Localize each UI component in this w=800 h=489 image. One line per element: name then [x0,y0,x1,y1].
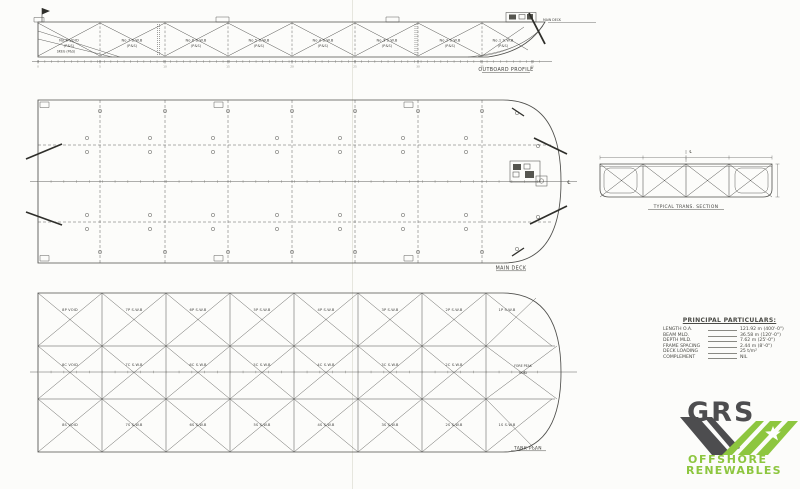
tank-label-center: 5C S.W.B [253,363,271,367]
frame-number: 30 [416,65,420,69]
tank-label-stbd: 3S S.W.B [381,423,398,427]
profile-skeg-label: SKEG (P&S) [57,50,76,54]
mooring-line-arrows [26,108,567,256]
particulars-title: PRINCIPAL PARTICULARS: [663,317,796,324]
tank-label-stbd: 8S VOID [62,423,78,427]
tank-label-port: 2P S.W.B [446,308,463,312]
particulars-row: COMPLEMENT NIL [663,355,796,361]
frame-number: 25 [353,65,357,69]
tank-label-stbd: 2S S.W.B [445,423,462,427]
leader-line [708,357,737,359]
profile-tank-label: No.5 S.W.B [248,39,269,43]
tank-label-stbd: 6S S.W.B [189,423,206,427]
tank-label-stbd: 1S S.W.B [498,423,515,427]
grs-offshore-renewables-logo: GRS OFFSHORE RENEWABLES [676,401,798,485]
tank-cell-bracing [38,293,557,452]
profile-bulkheads [100,22,482,57]
profile-skeg-lines [38,31,120,57]
main-deck-edge-label: MAIN DECK [543,18,562,22]
tank-label-center: 4C S.W.B [317,363,335,367]
profile-tank-label: No.6 S.W.B [185,39,206,43]
fore-peak-label: VOID [519,371,528,375]
profile-tank-sub: (P&S) [445,44,456,48]
particular-label: COMPLEMENT [663,355,705,361]
leader-line [708,335,737,337]
profile-tank-label: No.8 VOID [59,39,79,43]
tank-label-port: 8P VOID [62,308,78,312]
tank-label-stbd: 4S S.W.B [317,423,334,427]
tank-label-port: 7P S.W.B [126,308,143,312]
tank-label-port: 4P S.W.B [318,308,335,312]
tank-plan-labels: 8P VOID 7P S.W.B 6P S.W.B 5P S.W.B 4P S.… [62,308,542,451]
profile-tank-sub: (P&S) [127,44,138,48]
main-deck-caption: MAIN DECK [496,265,527,271]
deck-centerline-symbol: ℄ [567,180,571,186]
tank-label-port: 6P S.W.B [190,308,207,312]
principal-particulars-table: PRINCIPAL PARTICULARS: LENGTH O.A. 121.9… [663,317,796,361]
frame-number: 0 [37,65,39,69]
main-deck-view [26,100,577,271]
leader-line [708,329,737,331]
deck-longitudinal-dashed [38,145,552,222]
outboard-profile-labels: MAIN DECK No.8 VOID (P&S) No.7 S.W.B (P&… [37,18,562,73]
drawing-sheet: MAIN DECK No.8 VOID (P&S) No.7 S.W.B (P&… [0,0,800,489]
frame-number: 5 [99,65,101,69]
profile-tank-label: No.4 S.W.B [312,39,333,43]
trans-section-view [600,150,780,209]
tank-label-stbd: 5S S.W.B [253,423,270,427]
section-centerline-symbol: ℄ [689,149,692,154]
profile-tank-sub: (P&S) [382,44,393,48]
profile-tank-sub: (P&S) [318,44,329,48]
tank-label-port: 3P S.W.B [382,308,399,312]
particular-value: NIL [740,355,796,361]
tank-label-center: 2C S.W.B [445,363,463,367]
profile-tank-label: No.3 S.W.B [376,39,397,43]
tank-longitudinal-bhds [38,346,555,399]
profile-hull-outline [38,22,545,57]
profile-tank-sub: (P&S) [191,44,202,48]
profile-tank-label: No.2 S.W.B [439,39,460,43]
tank-label-port: 1P S.W.B [499,308,516,312]
tank-label-center: 7C S.W.B [125,363,143,367]
tank-label-center: 8C VOID [62,363,78,367]
frame-number: 10 [163,65,167,69]
leader-line [708,346,737,348]
profile-tank-sub: (P&S) [64,44,75,48]
tank-hull-outline [38,293,561,452]
profile-deck-label-boxes [34,17,399,22]
profile-tank-sub: (P&S) [498,44,509,48]
fore-peak-label: FORE PEAK [514,364,533,368]
tank-plan-caption: TANK PLAN [513,445,542,451]
profile-tank-label: No.1 S.W.B [492,39,513,43]
stern-flag [42,8,50,22]
leader-line [708,352,737,354]
logo-renewables-text: RENEWABLES [686,464,782,477]
logo-wordmark: GRS [687,397,755,428]
leader-line [708,340,737,342]
section-caption: TYPICAL TRANS. SECTION [653,204,719,210]
profile-tank-sub: (P&S) [254,44,265,48]
tank-plan-view [30,293,577,452]
main-deck-labels: ℄ MAIN DECK [496,180,572,271]
section-frames [643,164,729,197]
frame-number: 15 [226,65,230,69]
tank-label-center: 3C S.W.B [381,363,399,367]
frame-number: 20 [290,65,294,69]
deck-deckhouse [510,161,547,186]
tank-label-center: 6C S.W.B [189,363,207,367]
profile-tank-label: No.7 S.W.B [121,39,142,43]
tank-label-stbd: 7S S.W.B [125,423,142,427]
profile-caption: OUTBOARD PROFILE [478,67,533,73]
tank-label-port: 5P S.W.B [254,308,271,312]
